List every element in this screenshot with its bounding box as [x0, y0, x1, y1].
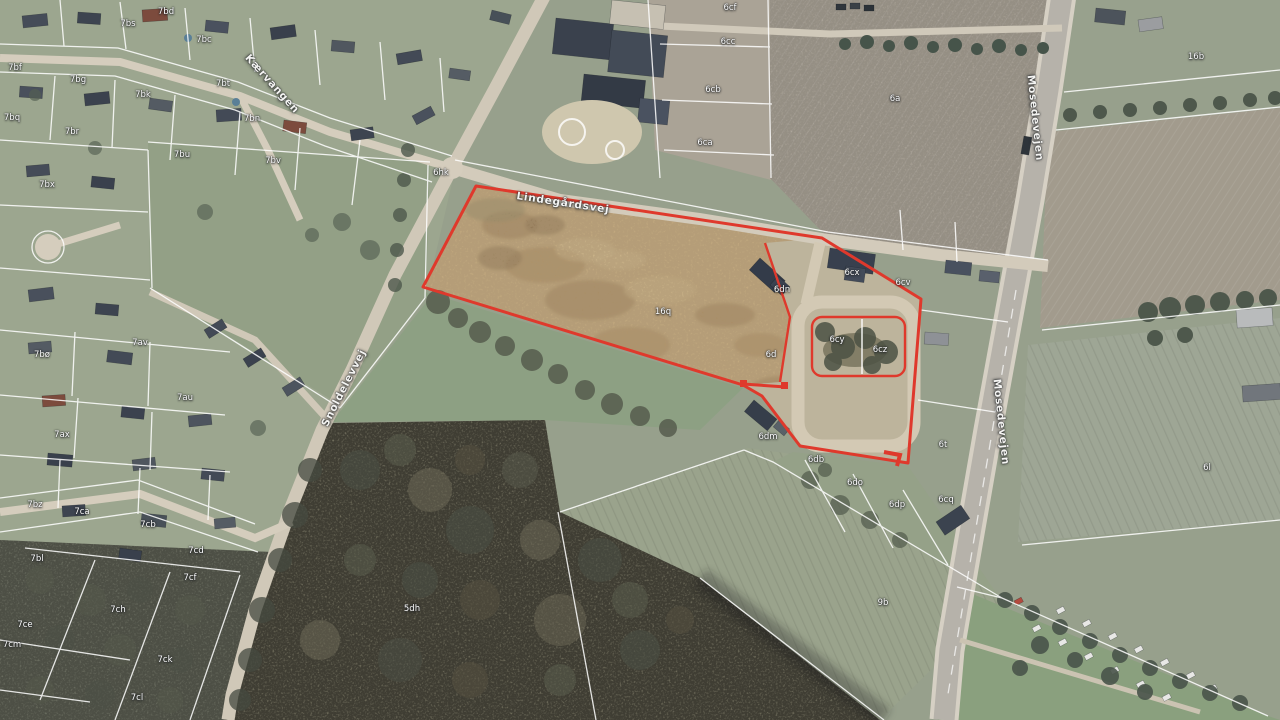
aerial-photo [0, 0, 1280, 720]
map-viewport[interactable]: LindegårdsvejSnoldelevvejKærvangenMosede… [0, 0, 1280, 720]
